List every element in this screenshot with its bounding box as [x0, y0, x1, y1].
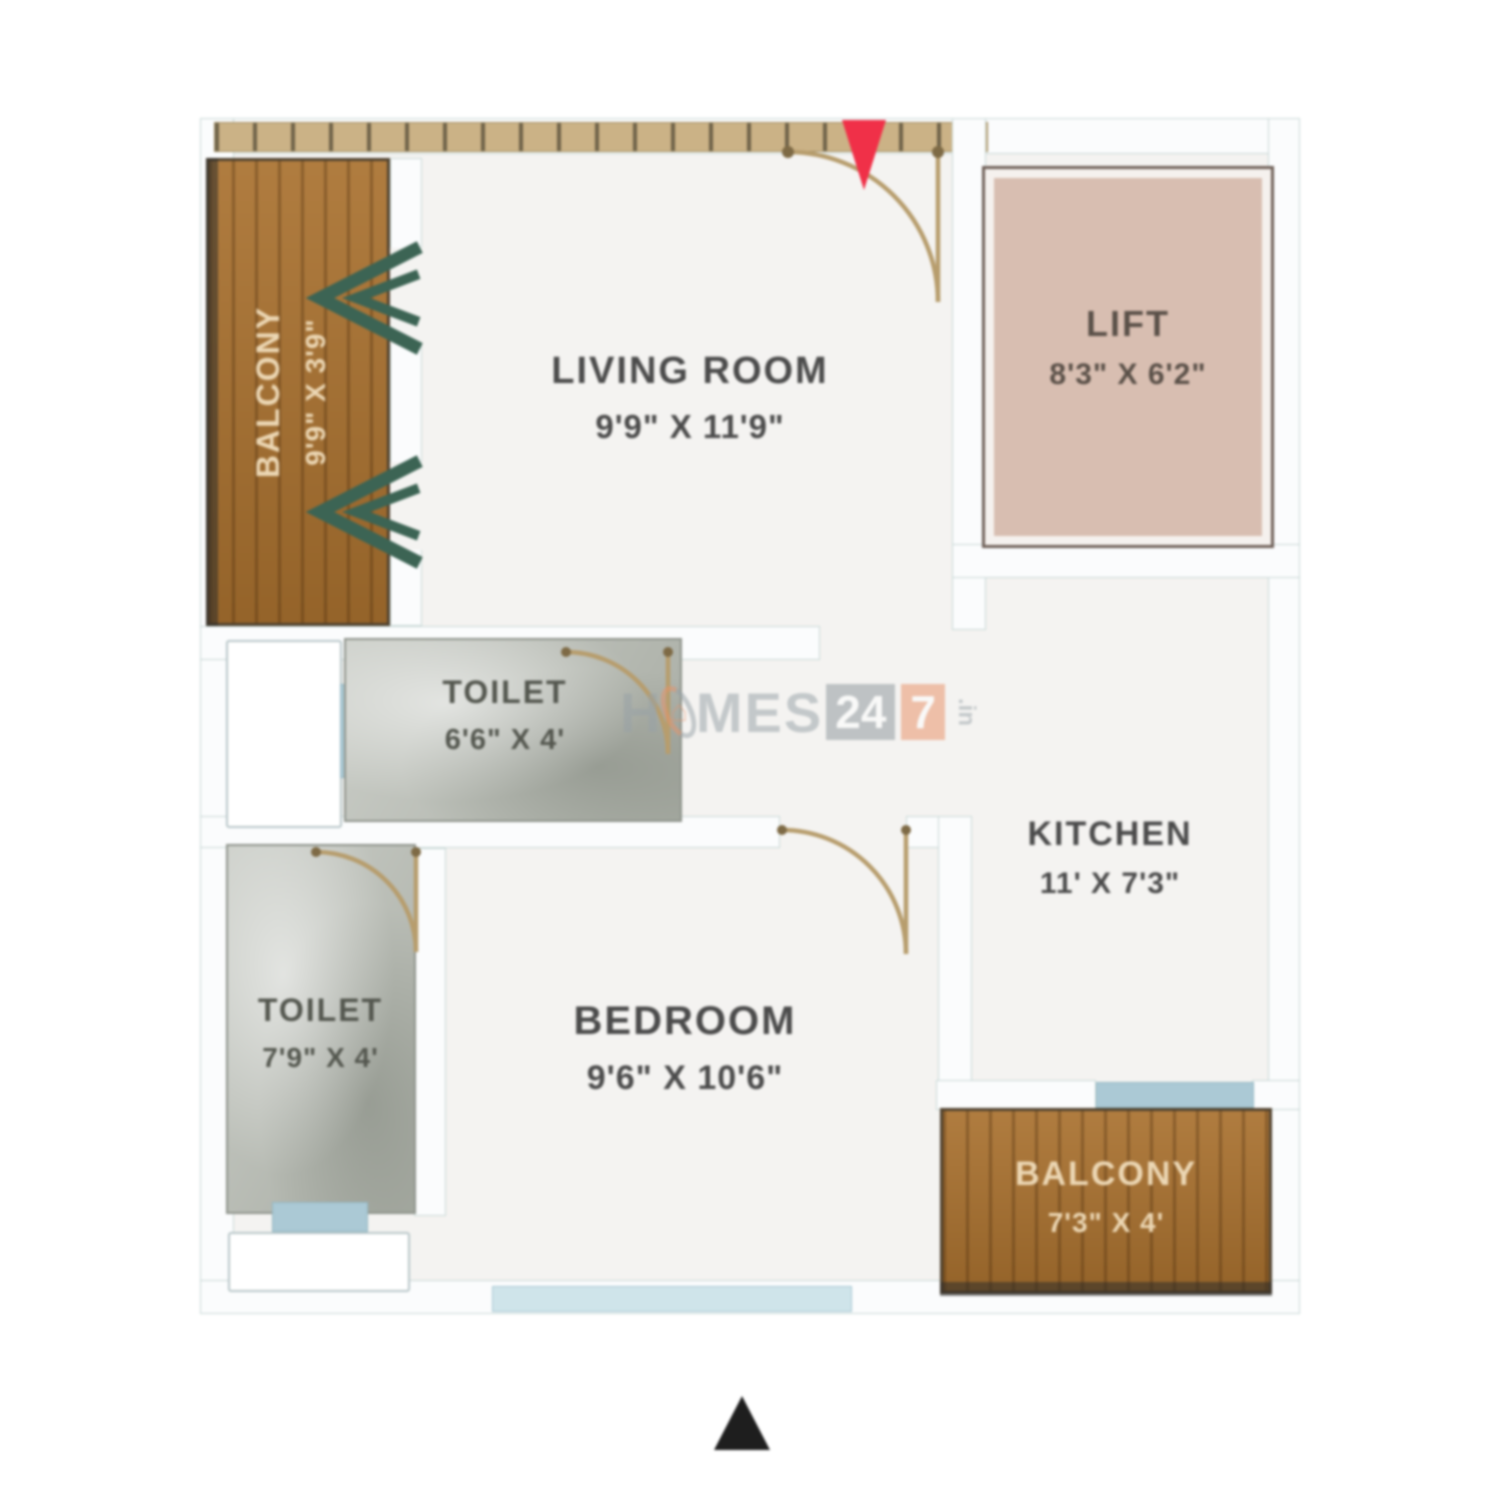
- living-room-label: LIVING ROOM 9'9" X 11'9": [440, 342, 940, 452]
- kitchen-balcony-window: [1096, 1082, 1254, 1108]
- bedroom-label: BEDROOM 9'6" X 10'6": [435, 990, 935, 1105]
- watermark-text-mes: MES: [696, 680, 823, 745]
- wall-above-balcony2-right: [1252, 1080, 1300, 1110]
- bedroom-window: [492, 1286, 852, 1312]
- balcony-1-edge-shadow: [206, 158, 218, 626]
- watermark-text-h: H: [620, 680, 662, 745]
- balcony-opening-bottom: [389, 462, 423, 550]
- floor-plan: LIVING ROOM 9'9" X 11'9" LIFT 8'3" X 6'2…: [0, 0, 1500, 1500]
- kitchen-label: KITCHEN 11' X 7'3": [960, 808, 1260, 907]
- corridor-hatch-band: [214, 122, 988, 152]
- watermark-suffix: .in: [952, 698, 980, 726]
- toilet-2-window: [272, 1202, 368, 1232]
- watermark-badge-7: 7: [901, 684, 945, 740]
- balcony-2-edge-shadow: [940, 1282, 1272, 1296]
- lift-label: LIFT 8'3" X 6'2": [988, 296, 1268, 398]
- watermark-badge-24: 24: [826, 684, 895, 740]
- homes247-watermark: H ⌂ MES 24 7 .in: [620, 666, 980, 758]
- wall-above-balcony2-left: [936, 1080, 1096, 1110]
- north-arrow-icon: [714, 1396, 770, 1450]
- balcony-opening-top: [389, 248, 423, 344]
- wall-below-lift: [952, 544, 1300, 578]
- duct-box-1: [226, 640, 342, 828]
- balcony-2-label: BALCONY 7'3" X 4': [956, 1148, 1256, 1244]
- wall-balcony-living: [390, 158, 422, 626]
- duct-box-2: [228, 1232, 410, 1292]
- toilet-2-label: TOILET 7'9" X 4': [218, 986, 423, 1079]
- toilet-1-label: TOILET 6'6" X 4': [355, 668, 655, 763]
- balcony-1-label: BALCONY 9'9" X 3'9": [244, 222, 364, 562]
